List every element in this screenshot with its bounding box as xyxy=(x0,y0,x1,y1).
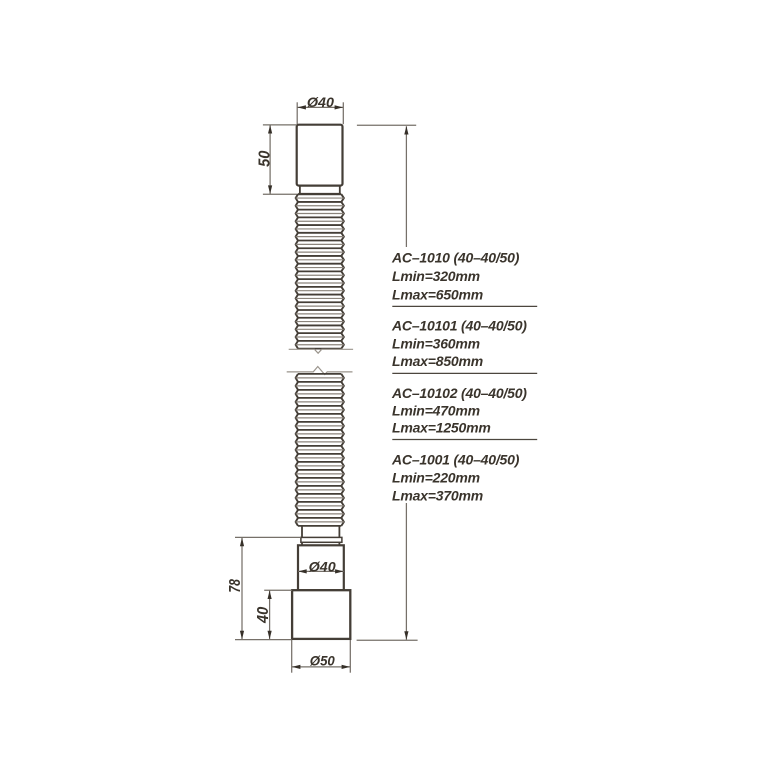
svg-text:Lmax=1250mm: Lmax=1250mm xyxy=(392,420,491,436)
svg-text:78: 78 xyxy=(227,579,244,593)
svg-text:Ø40: Ø40 xyxy=(309,558,336,574)
svg-text:Lmax=850mm: Lmax=850mm xyxy=(392,353,483,369)
svg-text:Lmin=470mm: Lmin=470mm xyxy=(392,402,480,418)
svg-text:AC–1010 (40–40/50): AC–1010 (40–40/50) xyxy=(391,250,520,266)
svg-text:50: 50 xyxy=(257,150,274,166)
svg-text:Lmin=360mm: Lmin=360mm xyxy=(392,335,480,351)
svg-text:Ø40: Ø40 xyxy=(307,94,334,110)
svg-text:Lmin=320mm: Lmin=320mm xyxy=(392,268,480,284)
svg-text:Ø50: Ø50 xyxy=(310,653,335,669)
svg-text:40: 40 xyxy=(255,607,272,624)
svg-text:AC–10101 (40–40/50): AC–10101 (40–40/50) xyxy=(391,317,527,333)
svg-text:Lmin=220mm: Lmin=220mm xyxy=(392,470,480,486)
svg-text:AC–1001 (40–40/50): AC–1001 (40–40/50) xyxy=(391,451,520,467)
svg-text:AC–10102 (40–40/50): AC–10102 (40–40/50) xyxy=(391,385,527,401)
svg-text:Lmax=650mm: Lmax=650mm xyxy=(392,286,483,302)
svg-text:Lmax=370mm: Lmax=370mm xyxy=(392,487,483,503)
